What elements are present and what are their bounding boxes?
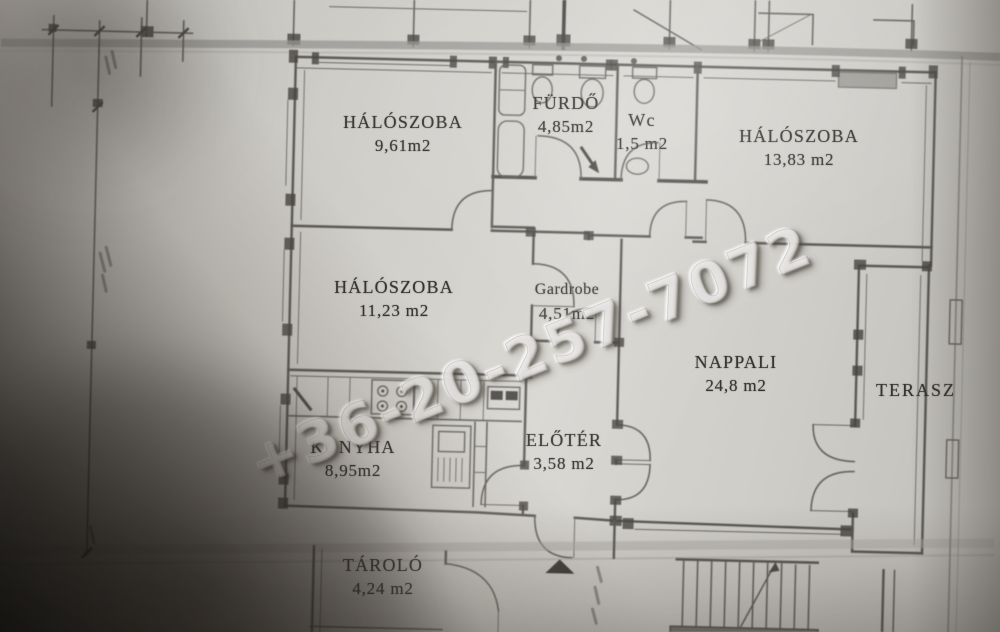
floorplan-drawing — [0, 0, 1000, 632]
room-label-haloszoba-2: HÁLÓSZOBA 13,83 m2 — [739, 124, 859, 172]
room-label-haloszoba-3: HÁLÓSZOBA 11,23 m2 — [334, 275, 454, 323]
room-label-wc: Wc 1,5 m2 — [616, 108, 668, 156]
room-label-eloter: ELŐTÉR 3,58 m2 — [526, 428, 602, 476]
room-name: HÁLÓSZOBA — [343, 112, 463, 132]
room-area: 9,61m2 — [343, 134, 463, 158]
room-name: HÁLÓSZOBA — [739, 126, 859, 146]
room-label-haloszoba-1: HÁLÓSZOBA 9,61m2 — [343, 110, 463, 158]
room-area: 1,5 m2 — [616, 132, 668, 156]
paper-tilt-layer — [0, 0, 1000, 632]
room-area: 4,85m2 — [532, 115, 599, 139]
room-name: TÁROLÓ — [343, 555, 423, 575]
room-name: Wc — [628, 110, 655, 130]
room-name: ELŐTÉR — [526, 430, 602, 450]
lower-strip — [0, 505, 995, 632]
room-area: 24,8 m2 — [695, 374, 778, 398]
room-label-furdo: FÜRDŐ 4,85m2 — [532, 91, 599, 139]
room-label-nappali: NAPPALI 24,8 m2 — [695, 350, 778, 398]
north-triangle-icon — [545, 559, 574, 574]
floorplan-photo: HÁLÓSZOBA 9,61m2 FÜRDŐ 4,85m2 Wc 1,5 m2 … — [0, 0, 1000, 632]
room-name: FÜRDŐ — [532, 93, 599, 113]
room-name: HÁLÓSZOBA — [334, 277, 454, 297]
room-name: NAPPALI — [695, 352, 778, 372]
room-area: 4,24 m2 — [343, 577, 423, 601]
room-area: 3,58 m2 — [526, 452, 602, 476]
room-label-tarolo: TÁROLÓ 4,24 m2 — [343, 553, 423, 601]
room-area: 13,83 m2 — [739, 148, 859, 172]
room-name: TERASZ — [876, 380, 956, 400]
room-area: 11,23 m2 — [334, 299, 454, 323]
room-label-terasz: TERASZ — [876, 378, 956, 402]
dimension-lines-left — [30, 16, 193, 561]
